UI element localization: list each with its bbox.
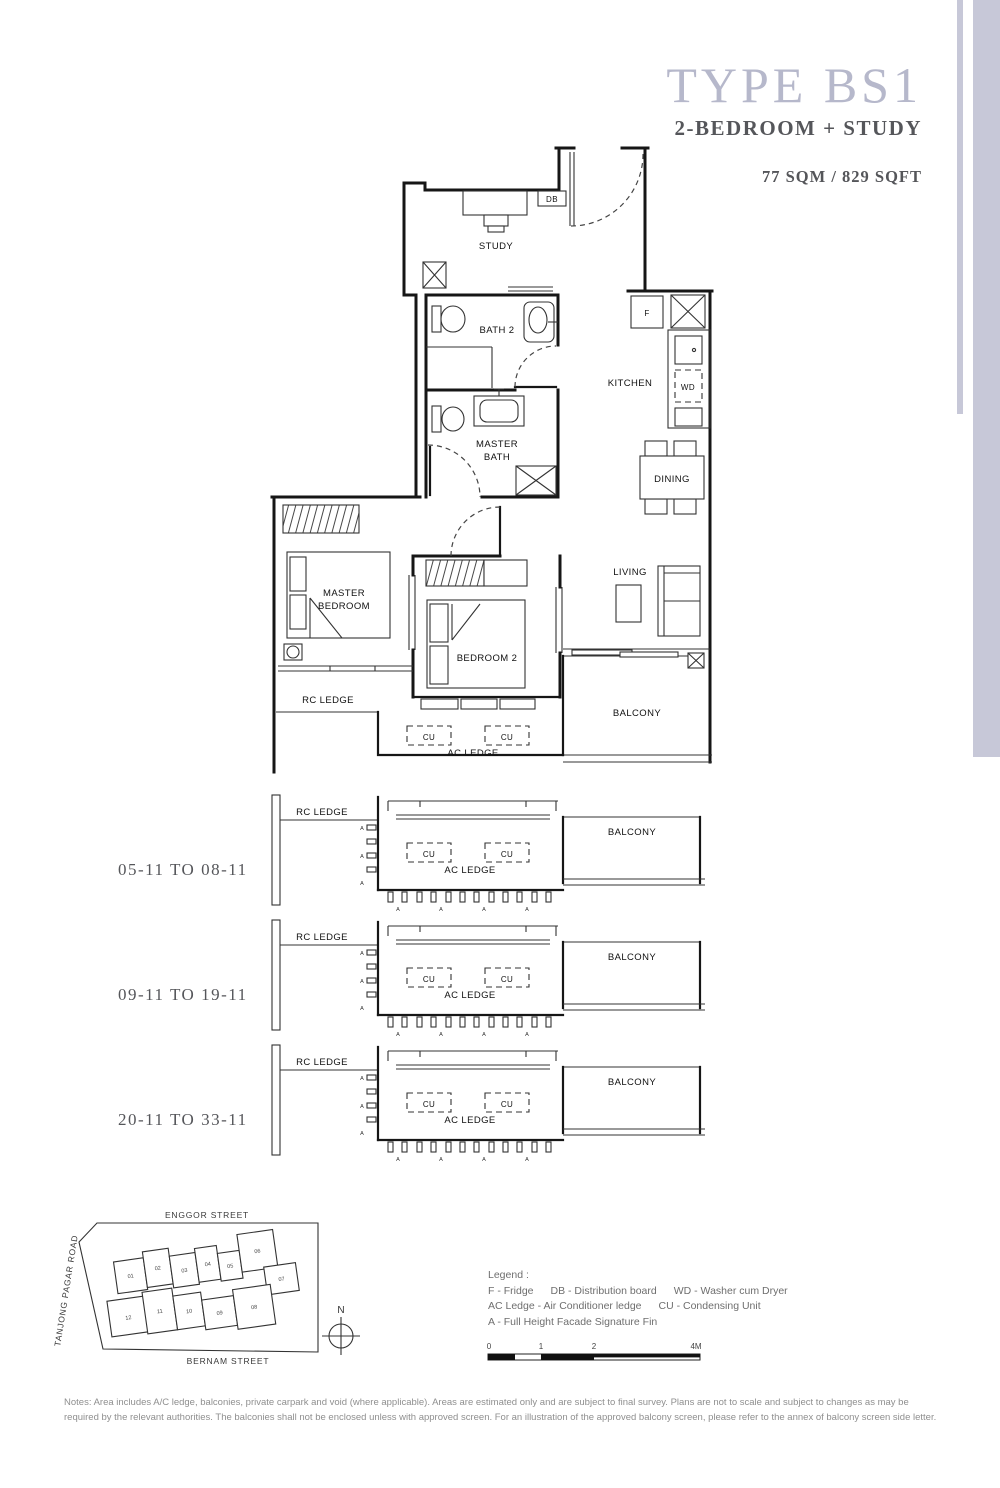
- street-label-top: ENGGOR STREET: [165, 1210, 249, 1220]
- main-floor-plan: STUDY DB BATH 2 MASTER BATH KITCHEN F WD…: [272, 148, 712, 772]
- compass-north-label: N: [337, 1305, 344, 1316]
- room-label-living: LIVING: [613, 567, 647, 578]
- stack-label-2: 09-11 TO 19-11: [118, 985, 248, 1004]
- ledges-group: [276, 712, 563, 755]
- legend-item-cu: CU - Condensing Unit: [659, 1300, 761, 1312]
- unit-number: 08: [251, 1304, 258, 1311]
- column-icon: [423, 262, 446, 288]
- master-bedroom-group: [283, 505, 390, 660]
- wardrobe-icon: [283, 505, 359, 533]
- shelf-icon: [484, 560, 527, 586]
- db-label: DB: [546, 195, 558, 204]
- toilet-tank-icon: [432, 406, 441, 432]
- street-label-left: TANJONG PAGAR ROAD: [52, 1234, 80, 1347]
- scale-tick-4m: 4M: [690, 1342, 701, 1351]
- ac-ledge-label: AC LEDGE: [447, 748, 498, 759]
- kitchen-group: [631, 295, 710, 428]
- fridge-label: F: [644, 309, 649, 318]
- room-label-master-bedroom: MASTER: [323, 588, 365, 599]
- site-map: ENGGOR STREET BERNAM STREET TANJONG PAGA…: [52, 1210, 360, 1366]
- unit-number: 02: [154, 1265, 161, 1272]
- shower-icon: [516, 466, 556, 495]
- cu-label: CU: [501, 733, 513, 742]
- legend-item-fridge: F - Fridge: [488, 1285, 534, 1297]
- toilet-icon: [442, 407, 464, 431]
- bed-icon: [427, 600, 525, 688]
- svg-text:BATH: BATH: [484, 452, 510, 463]
- sink-icon: [480, 400, 518, 422]
- scale-tick-0: 0: [487, 1342, 492, 1351]
- unit-number: 05: [227, 1263, 234, 1270]
- stack-row-2: 09-11 TO 19-11: [118, 920, 705, 1038]
- coffee-table-icon: [616, 585, 641, 622]
- master-bath-door-arc: [428, 445, 480, 497]
- unit-number: 10: [186, 1309, 193, 1316]
- balcony-group: [563, 649, 712, 762]
- entrance-door-arc: [571, 152, 643, 226]
- scale-tick-1: 1: [539, 1342, 544, 1351]
- hob-icon: [675, 336, 702, 364]
- bath2-group: [426, 302, 558, 388]
- room-label-bedroom2: BEDROOM 2: [457, 653, 518, 664]
- unit-number: 06: [254, 1248, 261, 1255]
- sofa-icon: [658, 566, 700, 636]
- wardrobe-icon: [426, 560, 484, 586]
- kitchen-sink-icon: [671, 295, 705, 328]
- wd-label: WD: [681, 383, 695, 392]
- legend: Legend : F - FridgeDB - Distribution boa…: [488, 1268, 805, 1330]
- notes-text: Notes: Area includes A/C ledge, balconie…: [64, 1396, 942, 1425]
- balcony-shutter-box-icon: [688, 653, 704, 668]
- compass-icon: N: [322, 1305, 360, 1355]
- study-chair-icon: [484, 215, 508, 226]
- unit-number: 01: [127, 1273, 134, 1280]
- floorplan-canvas: RC LEDGE A A A CU CU AC LEDGE: [0, 0, 1000, 1488]
- svg-text:BEDROOM: BEDROOM: [318, 601, 370, 612]
- legend-item-wd: WD - Washer cum Dryer: [674, 1285, 788, 1297]
- entrance-door: [570, 152, 643, 226]
- room-label-balcony: BALCONY: [613, 708, 661, 719]
- study-desk-icon: [463, 191, 527, 215]
- toilet-icon: [441, 306, 465, 332]
- unit-number: 11: [157, 1309, 163, 1316]
- stack-label-3: 20-11 TO 33-11: [118, 1110, 248, 1129]
- legend-item-ac-ledge: AC Ledge - Air Conditioner ledge: [488, 1300, 642, 1312]
- room-label-bath2: BATH 2: [480, 325, 515, 336]
- shower-screen: [426, 347, 492, 388]
- rc-ledge-label: RC LEDGE: [302, 695, 354, 706]
- legend-title: Legend :: [488, 1268, 805, 1284]
- building-cluster: 01 02 03 04 05 06 07 12 11 10 09 08: [100, 1227, 303, 1347]
- street-label-bottom: BERNAM STREET: [187, 1356, 270, 1366]
- room-label-study: STUDY: [479, 241, 513, 252]
- stack-row-1: 05-11 TO 08-11: [118, 795, 705, 913]
- unit-number: 04: [204, 1261, 211, 1268]
- bedroom2-door-arc: [451, 507, 500, 556]
- legend-item-db: DB - Distribution board: [551, 1285, 657, 1297]
- stack-row-3: 20-11 TO 33-11: [118, 1045, 705, 1163]
- bath2-door-arc: [515, 346, 556, 387]
- room-label-kitchen: KITCHEN: [608, 378, 653, 389]
- study-group: [423, 191, 566, 288]
- unit-number: 03: [181, 1268, 188, 1275]
- room-label-dining: DINING: [654, 474, 690, 485]
- scale-tick-2: 2: [592, 1342, 597, 1351]
- toilet-tank-icon: [432, 306, 441, 332]
- nightstand-icon: [284, 644, 302, 660]
- unit-number: 12: [125, 1315, 132, 1322]
- unit-number: 09: [216, 1310, 223, 1317]
- room-label-master-bath: MASTER: [476, 439, 518, 450]
- legend-item-fin: A - Full Height Facade Signature Fin: [488, 1316, 657, 1328]
- stack-label-1: 05-11 TO 08-11: [118, 860, 248, 879]
- unit-number: 07: [278, 1276, 285, 1283]
- scale-bar: 0 1 2 4M: [487, 1342, 702, 1360]
- cu-label: CU: [423, 733, 435, 742]
